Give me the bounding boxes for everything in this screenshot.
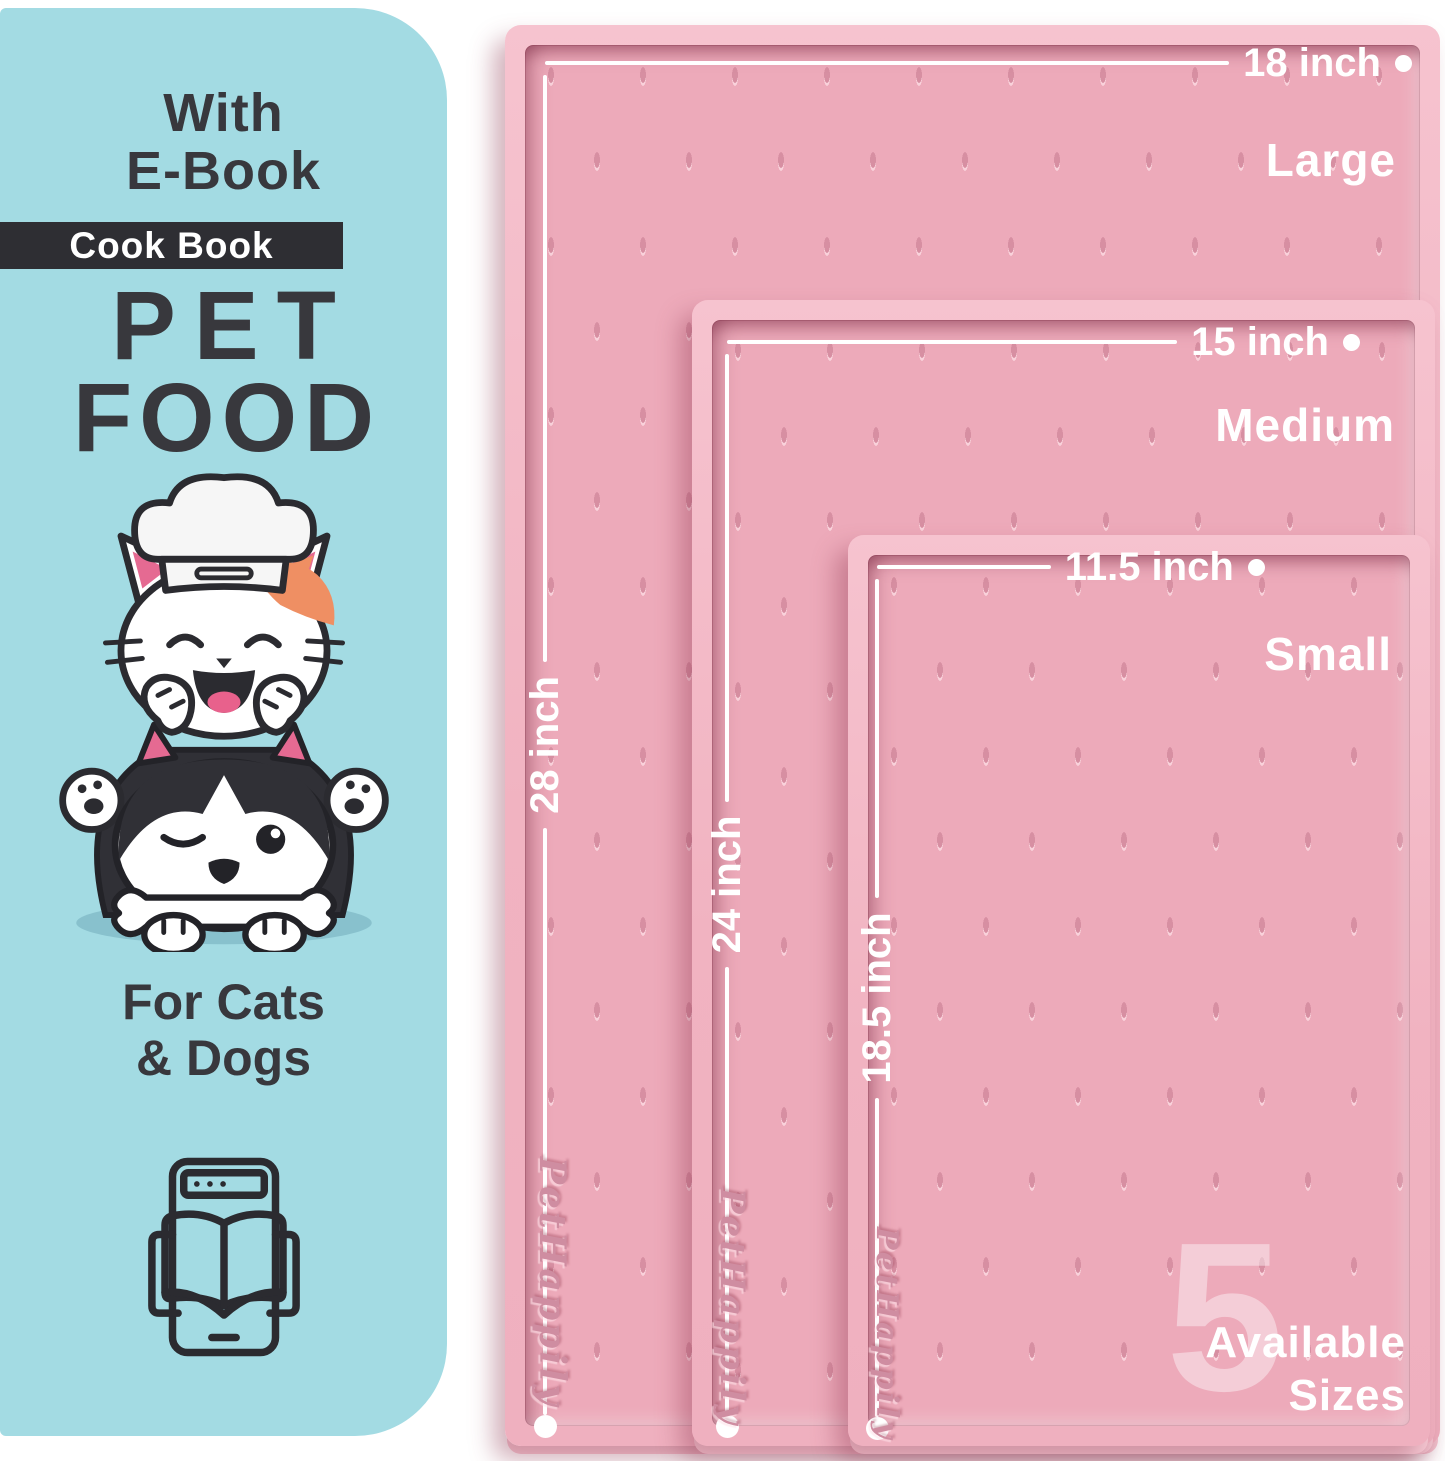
dimension-line-segment: [875, 579, 879, 898]
audience-note: For Cats & Dogs: [0, 974, 447, 1086]
mat-large-length-value: 28 inch: [523, 676, 568, 814]
mat-small-width-dimension-line: 11.5 inch: [877, 555, 1407, 579]
cook-book-badge: Cook Book: [0, 222, 343, 269]
available-sizes-line2: Sizes: [1205, 1370, 1406, 1423]
pet-food-title-line1: PET: [0, 280, 447, 372]
mat-medium-width-dimension-line: 15 inch: [727, 330, 1410, 354]
mat-small-brand-emboss: PetHappily: [869, 1227, 904, 1442]
ebook-reader-icon: [0, 1154, 447, 1365]
available-sizes-label: Available Sizes: [1205, 1317, 1406, 1423]
ebook-note-line2: E-Book: [0, 142, 447, 200]
ebook-note: With E-Book: [0, 84, 447, 200]
ebook-note-line1: With: [0, 84, 447, 142]
dimension-line-segment: [725, 354, 729, 802]
cat-dog-chef-illustration: [0, 466, 447, 957]
dimension-endpoint-dot: [1395, 55, 1412, 72]
product-infographic: With E-Book Cook Book PET FOOD: [0, 0, 1445, 1461]
dimension-endpoint-dot: [1248, 559, 1265, 576]
mat-medium-length-value: 24 inch: [705, 816, 750, 954]
mat-small-length-value: 18.5 inch: [855, 912, 900, 1083]
available-sizes-line1: Available: [1205, 1317, 1406, 1370]
mat-medium-brand-emboss: PetHappily: [712, 1188, 752, 1427]
pet-food-title-line2: FOOD: [0, 372, 447, 464]
info-panel: With E-Book Cook Book PET FOOD: [0, 8, 447, 1436]
mat-small-width-value: 11.5 inch: [1065, 545, 1234, 590]
mat-large-width-dimension-line: 18 inch: [545, 51, 1412, 75]
audience-line2: & Dogs: [0, 1030, 447, 1086]
mat-large-brand-emboss: PetHappily: [531, 1157, 573, 1409]
dimension-line-segment: [727, 340, 1177, 344]
cook-book-badge-label: Cook Book: [69, 225, 273, 267]
mat-small-surface: [868, 555, 1410, 1426]
ebook-reader-svg: [135, 1154, 313, 1360]
cat-dog-chef-svg: [49, 466, 399, 952]
mat-medium-width-value: 15 inch: [1191, 320, 1329, 365]
dimension-line-segment: [543, 75, 547, 662]
mat-small-size-label: Small: [1264, 627, 1392, 681]
pet-food-title: PET FOOD: [0, 280, 447, 464]
dimension-endpoint-dot: [1343, 334, 1360, 351]
dimension-endpoint-dot: [534, 1415, 557, 1438]
dimension-line-segment: [545, 61, 1229, 65]
audience-line1: For Cats: [0, 974, 447, 1030]
mat-large-size-label: Large: [1266, 133, 1396, 187]
mat-small: 5 Available Sizes 11.5 inch 18.5 inch Sm…: [848, 535, 1430, 1446]
mat-large-width-value: 18 inch: [1243, 41, 1381, 86]
dimension-line-segment: [877, 565, 1051, 569]
mat-medium-size-label: Medium: [1215, 398, 1395, 452]
